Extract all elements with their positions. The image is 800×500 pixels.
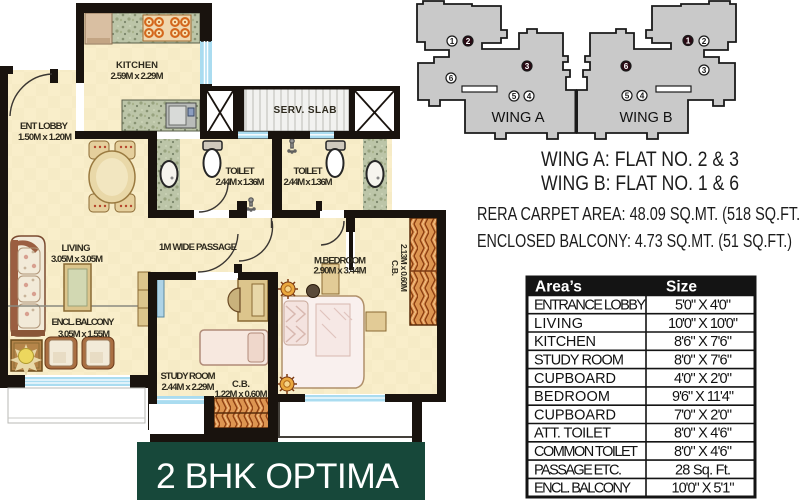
svg-text:ENT LOBBY: ENT LOBBY bbox=[20, 121, 69, 132]
svg-text:PASSAGE ETC.: PASSAGE ETC. bbox=[534, 462, 622, 478]
svg-text:8'6" X 7'6": 8'6" X 7'6" bbox=[674, 334, 732, 350]
svg-text:KITCHEN: KITCHEN bbox=[116, 60, 158, 71]
svg-text:LIVING: LIVING bbox=[534, 316, 583, 332]
svg-text:8'0" X 4'6": 8'0" X 4'6" bbox=[674, 444, 732, 460]
svg-text:STUDY ROOM: STUDY ROOM bbox=[161, 371, 216, 382]
svg-text:BEDROOM: BEDROOM bbox=[534, 389, 610, 405]
svg-text:STUDY ROOM: STUDY ROOM bbox=[534, 353, 624, 369]
svg-text:ENTRANCE LOBBY: ENTRANCE LOBBY bbox=[534, 298, 646, 314]
svg-text:2: 2 bbox=[466, 37, 471, 46]
svg-text:Area’s: Area’s bbox=[535, 279, 582, 296]
svg-text:4: 4 bbox=[527, 92, 532, 101]
svg-text:8'0" X 4'6": 8'0" X 4'6" bbox=[674, 426, 732, 442]
svg-text:ATT. TOILET: ATT. TOILET bbox=[534, 426, 611, 442]
svg-text:6: 6 bbox=[449, 74, 454, 83]
svg-text:10'0" X 10'0": 10'0" X 10'0" bbox=[668, 316, 738, 332]
svg-text:8'0" X 7'6": 8'0" X 7'6" bbox=[674, 353, 732, 369]
svg-text:C.B.: C.B. bbox=[390, 260, 400, 276]
svg-text:KITCHEN: KITCHEN bbox=[534, 334, 596, 350]
svg-text:CUPBOARD: CUPBOARD bbox=[534, 371, 616, 387]
svg-text:TOILET: TOILET bbox=[294, 166, 323, 177]
svg-text:WING A: FLAT NO. 2 & 3: WING A: FLAT NO. 2 & 3 bbox=[541, 148, 739, 171]
svg-text:3.05M x 1.55M: 3.05M x 1.55M bbox=[58, 329, 110, 340]
svg-text:WING A: WING A bbox=[492, 109, 545, 126]
svg-text:SERV. SLAB: SERV. SLAB bbox=[274, 105, 337, 116]
svg-text:28 Sq. Ft.: 28 Sq. Ft. bbox=[675, 462, 731, 478]
svg-text:Size: Size bbox=[666, 279, 697, 296]
svg-text:2.13M x 0.60M: 2.13M x 0.60M bbox=[399, 244, 409, 292]
svg-text:2.59M x 2.29M: 2.59M x 2.29M bbox=[111, 71, 164, 82]
svg-text:2.44M x 1.36M: 2.44M x 1.36M bbox=[216, 177, 265, 188]
svg-text:ENCLOSED BALCONY: 4.73 SQ.MT.: ENCLOSED BALCONY: 4.73 SQ.MT. (51 SQ.FT.… bbox=[477, 230, 792, 251]
svg-text:ENCL. BALCONY: ENCL. BALCONY bbox=[534, 481, 631, 497]
svg-text:1M WIDE PASSAGE: 1M WIDE PASSAGE bbox=[159, 242, 237, 253]
svg-text:7'0" X 2'0": 7'0" X 2'0" bbox=[674, 407, 732, 423]
svg-text:4: 4 bbox=[640, 92, 645, 101]
svg-text:1.22M x 0.60M: 1.22M x 0.60M bbox=[215, 389, 268, 400]
svg-text:5'0" X 4'0": 5'0" X 4'0" bbox=[675, 298, 731, 314]
svg-text:3.05M x 3.05M: 3.05M x 3.05M bbox=[51, 254, 103, 265]
svg-text:RERA CARPET AREA: 48.09 SQ.MT.: RERA CARPET AREA: 48.09 SQ.MT. (518 SQ.F… bbox=[477, 203, 800, 224]
svg-text:2.90M x 3.44M: 2.90M x 3.44M bbox=[314, 266, 367, 277]
svg-text:WING B: WING B bbox=[620, 109, 673, 126]
svg-text:5: 5 bbox=[625, 92, 630, 101]
svg-text:2 BHK OPTIMA: 2 BHK OPTIMA bbox=[156, 456, 401, 496]
svg-text:9'6" X 11'4": 9'6" X 11'4" bbox=[672, 389, 734, 405]
svg-text:4'0" X 2'0": 4'0" X 2'0" bbox=[674, 371, 732, 387]
svg-text:10'0" X 5'1": 10'0" X 5'1" bbox=[672, 481, 735, 497]
svg-text:CUPBOARD: CUPBOARD bbox=[534, 407, 616, 423]
svg-text:TOILET: TOILET bbox=[226, 166, 255, 177]
svg-text:WING B: FLAT NO. 1 & 6: WING B: FLAT NO. 1 & 6 bbox=[541, 172, 739, 195]
svg-text:1: 1 bbox=[686, 37, 691, 46]
svg-text:2.44M x 2.29M: 2.44M x 2.29M bbox=[162, 382, 215, 393]
svg-text:6: 6 bbox=[624, 62, 629, 71]
svg-text:2: 2 bbox=[702, 37, 707, 46]
svg-text:3: 3 bbox=[525, 62, 530, 71]
svg-text:1.50M x 1.20M: 1.50M x 1.20M bbox=[18, 132, 72, 143]
svg-text:ENCL. BALCONY: ENCL. BALCONY bbox=[52, 317, 116, 328]
svg-text:COMMON TOILET: COMMON TOILET bbox=[534, 444, 638, 460]
svg-text:LIVING: LIVING bbox=[62, 243, 91, 254]
svg-text:2.44M x 1.36M: 2.44M x 1.36M bbox=[284, 177, 333, 188]
svg-text:5: 5 bbox=[512, 92, 517, 101]
svg-text:3: 3 bbox=[702, 66, 707, 75]
svg-text:1: 1 bbox=[450, 37, 455, 46]
